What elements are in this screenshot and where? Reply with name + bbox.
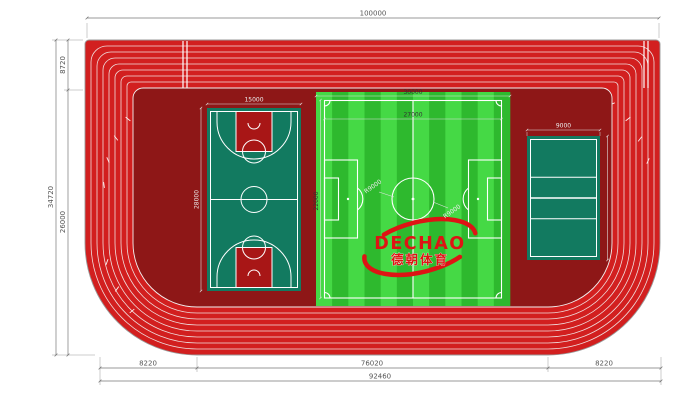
center-spot [412, 198, 415, 201]
dim-basketball-width: 15000 [244, 97, 263, 104]
dim-total-height: 34720 [47, 186, 55, 208]
dim-bottom-middle: 76020 [361, 360, 383, 368]
dim-football-length: 22000 [313, 191, 320, 210]
grass-stripe [445, 92, 461, 306]
stadium-plan-canvas: DECHAO 德朝体育 100000 34720 8720 26000 8220… [0, 0, 700, 400]
grass-stripe [429, 92, 445, 306]
dim-band-height: 8720 [59, 56, 67, 74]
basketball-court [207, 108, 301, 291]
logo-chinese: 德朝体育 [391, 252, 449, 267]
dim-basketball-length: 28000 [194, 190, 201, 209]
dim-bottom-total: 92460 [369, 373, 391, 381]
grass-stripe [494, 92, 510, 306]
dim-bottom-left: 8220 [139, 360, 157, 368]
logo-brand: DECHAO [374, 234, 465, 254]
penalty-spot-right [477, 198, 479, 200]
key-top [236, 112, 272, 152]
penalty-spot-left [347, 198, 349, 200]
grass-stripe [332, 92, 348, 306]
volleyball-court [527, 136, 600, 260]
grass-stripe [462, 92, 478, 306]
dim-football-outer-width: 30000 [403, 89, 422, 96]
dim-loop-height: 26000 [59, 211, 67, 233]
dim-overall-width: 100000 [360, 10, 387, 18]
grass-stripe [478, 92, 494, 306]
dim-football-inner-width: 27000 [403, 112, 422, 119]
key-bottom [236, 248, 272, 288]
dim-volleyball-width: 9000 [556, 123, 571, 130]
dim-bottom-right: 8220 [595, 360, 613, 368]
stadium-plan: DECHAO 德朝体育 100000 34720 8720 26000 8220… [0, 0, 700, 400]
